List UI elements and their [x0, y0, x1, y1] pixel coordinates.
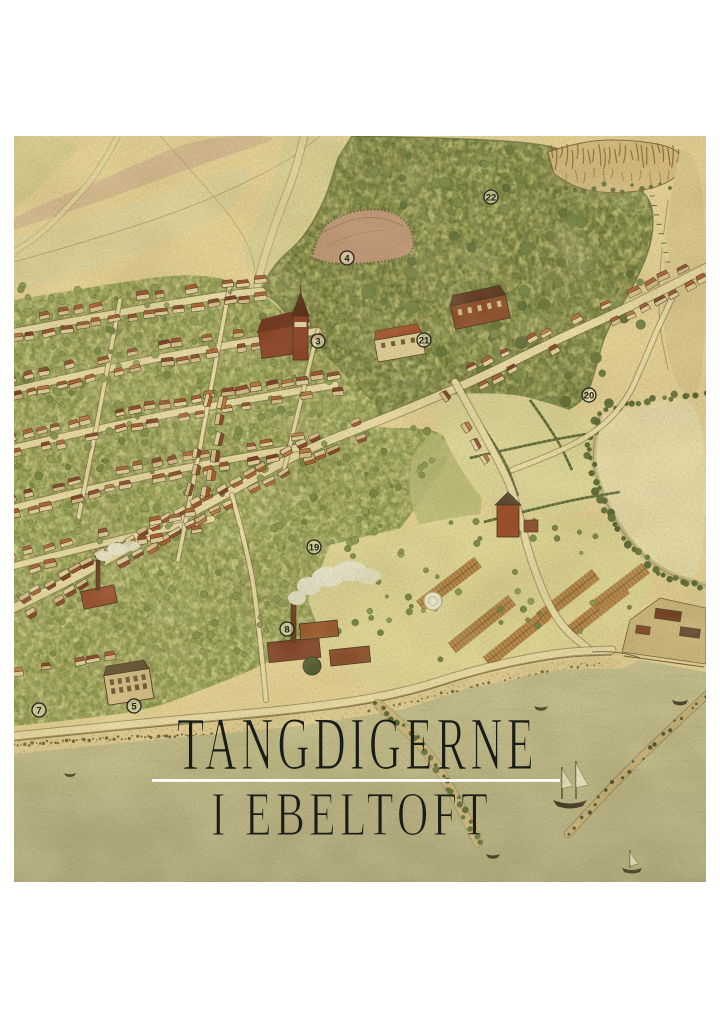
svg-text:21: 21	[419, 335, 430, 346]
svg-text:22: 22	[486, 192, 497, 203]
svg-text:3: 3	[315, 336, 320, 347]
svg-text:4: 4	[344, 253, 350, 264]
svg-text:20: 20	[584, 390, 595, 401]
svg-text:I EBELTOFT: I EBELTOFT	[211, 779, 492, 849]
svg-text:7: 7	[36, 705, 41, 716]
svg-text:5: 5	[131, 701, 137, 712]
svg-text:TANGDIGERNE: TANGDIGERNE	[177, 703, 538, 786]
svg-text:19: 19	[309, 542, 320, 553]
svg-text:8: 8	[284, 624, 289, 635]
